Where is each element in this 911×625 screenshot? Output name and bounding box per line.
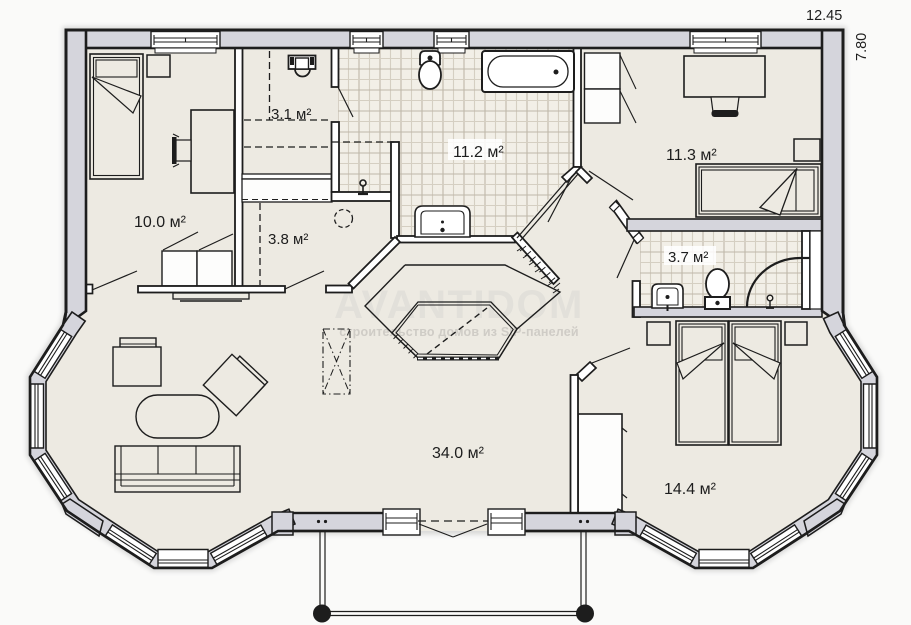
svg-text:10.0 м²: 10.0 м² bbox=[134, 214, 187, 231]
svg-text:11.2 м²: 11.2 м² bbox=[453, 144, 504, 161]
svg-text:3.1 м²: 3.1 м² bbox=[271, 106, 311, 123]
svg-text:строительство домов из SIP-пан: строительство домов из SIP-панелей bbox=[339, 325, 579, 339]
svg-text:3.8 м²: 3.8 м² bbox=[268, 231, 308, 248]
svg-text:14.4 м²: 14.4 м² bbox=[664, 481, 717, 498]
svg-text:3.7 м²: 3.7 м² bbox=[668, 249, 708, 266]
svg-text:11.3 м²: 11.3 м² bbox=[666, 147, 717, 164]
svg-text:7.80: 7.80 bbox=[854, 33, 870, 61]
svg-text:12.45: 12.45 bbox=[806, 8, 842, 24]
svg-text:34.0 м²: 34.0 м² bbox=[432, 445, 485, 462]
